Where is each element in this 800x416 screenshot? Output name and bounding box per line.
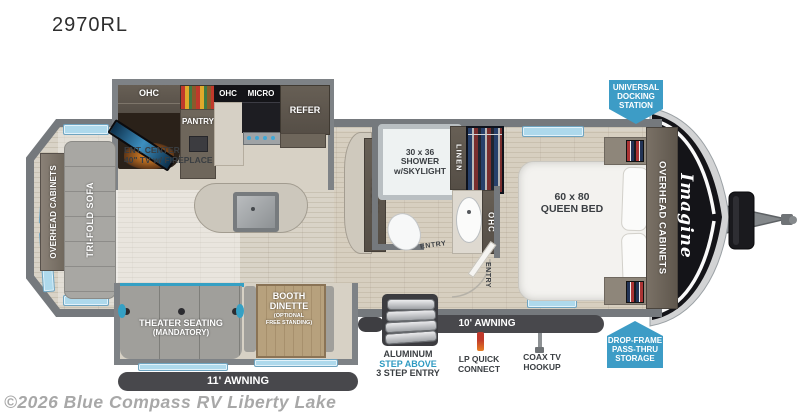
lp-line2: CONNECT <box>452 365 506 375</box>
theater-caption: THEATER SEATING (MANDATORY) <box>120 318 242 338</box>
refrigerator: REFER <box>280 85 330 135</box>
brand-logo: Imagine <box>671 146 701 286</box>
awning-rear-bar: 11' AWNING <box>118 372 358 391</box>
dinette-line2: DINETTE <box>238 301 340 311</box>
propane-cover <box>729 192 754 249</box>
main-entry-label: ENTRY <box>484 262 491 288</box>
docking-line3: STATION <box>609 101 663 110</box>
wardrobe <box>466 126 504 194</box>
coax-caption: COAX TV HOOKUP <box>515 353 569 372</box>
refer-label: REFER <box>281 86 329 134</box>
oven <box>242 102 280 133</box>
micro-label: MICRO <box>242 85 280 102</box>
nightstand-books <box>626 281 644 303</box>
ent-center-caption: ENT. CENTER 40" TV w/ FIREPLACE <box>124 145 213 165</box>
island-sink <box>233 192 279 232</box>
step <box>385 330 438 345</box>
window-strip <box>138 363 228 371</box>
ent-center-line2: 40" TV w/ FIREPLACE <box>124 155 213 165</box>
spice-rack <box>180 85 216 111</box>
brand-logo-text: Imagine <box>676 173 696 258</box>
docking-line2: DOCKING <box>609 92 663 101</box>
pantry-label: PANTRY <box>181 114 215 128</box>
nightstand-books <box>626 140 644 162</box>
ohc-left-cabinet: OHC <box>118 85 180 115</box>
bed-caption: 60 x 80 QUEEN BED <box>524 191 620 215</box>
storage-line1: DROP-FRAME <box>607 336 663 345</box>
theater-line2: (MANDATORY) <box>120 328 242 338</box>
storage-line3: STORAGE <box>607 354 663 363</box>
kitchen-counter <box>214 102 244 166</box>
faucet-dot <box>251 207 255 211</box>
theater-line1: THEATER SEATING <box>120 318 242 328</box>
dinette-line1: BOOTH <box>238 291 340 301</box>
window-strip <box>254 359 338 367</box>
bedroom-ohc-label: OVERHEAD CABINETS <box>657 161 668 275</box>
window-strip <box>522 126 584 137</box>
trifold-sofa: TRI-FOLD SOFA <box>64 141 116 299</box>
pantry-cabinet: PANTRY <box>180 109 216 179</box>
microwave: MICRO <box>242 85 280 102</box>
lp-caption: LP QUICK CONNECT <box>452 355 506 374</box>
propane-cover-highlight <box>733 196 739 245</box>
step <box>387 299 435 310</box>
dinette-line3: (OPTIONAL <box>238 313 340 320</box>
awning-front-bar: 10' AWNING <box>430 315 604 333</box>
awning-rear-label: 11' AWNING <box>207 375 269 387</box>
steps-line3: 3 STEP ENTRY <box>372 369 444 379</box>
ohc-left-label: OHC <box>118 85 180 101</box>
pillow <box>621 167 649 232</box>
bed-line2: QUEEN BED <box>524 203 620 215</box>
main-entry-label-wrap: ENTRY <box>484 262 498 298</box>
ohc-mid-cabinet: OHC <box>214 85 242 102</box>
ohc-mid-label: OHC <box>214 85 242 102</box>
lp-connect-icon <box>477 332 484 351</box>
awning-front-label: 10' AWNING <box>458 318 515 329</box>
theater-seating: THEATER SEATING (MANDATORY) <box>120 286 242 359</box>
dealer-watermark: ©2026 Blue Compass RV Liberty Lake <box>4 392 336 413</box>
bed-line1: 60 x 80 <box>524 191 620 203</box>
storage-line2: PASS-THRU <box>607 345 663 354</box>
stove-burners <box>243 132 281 145</box>
bath-sink <box>456 197 482 243</box>
kitchen-island <box>194 183 308 233</box>
refer-drawers <box>280 133 326 148</box>
coax-line2: HOOKUP <box>515 363 569 373</box>
faucet-dot <box>467 210 471 214</box>
sofa-label: TRI-FOLD SOFA <box>85 182 95 258</box>
shower-line3: w/SKYLIGHT <box>394 167 446 177</box>
steps-caption: ALUMINUM STEP ABOVE 3 STEP ENTRY <box>372 350 444 379</box>
rear-ohc-label: OVERHEAD CABINETS <box>49 165 58 259</box>
floorplan-page: 2970RL OHC PANTRY OHC <box>0 0 800 416</box>
step-handle <box>358 317 384 332</box>
hitch-ball <box>789 216 797 224</box>
teal-accent <box>118 304 126 318</box>
dinette-line4: FREE STANDING) <box>238 320 340 327</box>
docking-line1: UNIVERSAL <box>609 83 663 92</box>
rear-ohc: OVERHEAD CABINETS <box>40 153 66 271</box>
dinette-caption: BOOTH DINETTE (OPTIONAL FREE STANDING) <box>238 291 340 327</box>
kitchen-slideout: OHC PANTRY OHC MICRO REFER <box>112 79 334 190</box>
cupholder-dot <box>178 308 185 315</box>
living-slideout: THEATER SEATING (MANDATORY) BOOTH DINETT… <box>114 283 358 365</box>
window-strip <box>63 124 109 135</box>
linen-label: LINEN <box>455 144 464 172</box>
entry-steps <box>382 294 438 346</box>
ent-center-line1: ENT. CENTER <box>124 145 213 155</box>
